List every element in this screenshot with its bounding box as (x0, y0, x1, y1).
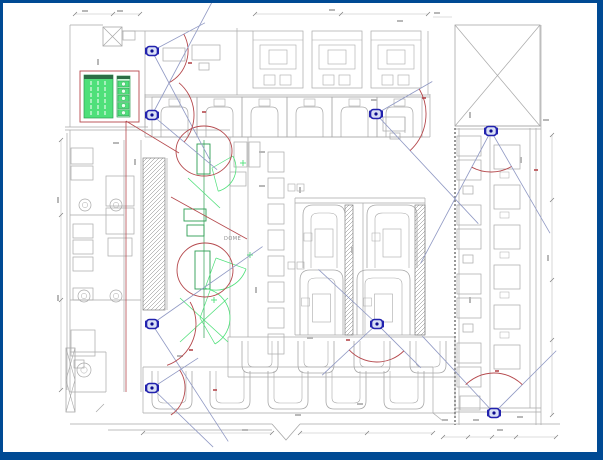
camera-fov (152, 247, 263, 442)
legend-table (80, 71, 139, 122)
frame-border-right (597, 0, 603, 460)
camera-icon[interactable] (369, 110, 383, 119)
cad-floor-plan-page: DOME (0, 0, 603, 460)
camera-icon[interactable] (484, 127, 498, 136)
camera-icon[interactable] (145, 320, 159, 329)
camera-fov (152, 23, 211, 162)
camera-fov (376, 82, 478, 224)
camera-icon[interactable] (370, 320, 384, 329)
booths-layer (152, 31, 520, 409)
camera-fov (421, 131, 550, 263)
frame-border-bottom (0, 452, 603, 460)
green-annotation-layer (180, 140, 253, 344)
camera-icon[interactable] (145, 47, 159, 56)
frame-border-top (0, 0, 603, 3)
floor-plan-svg (0, 0, 603, 460)
dome-camera-label: DOME (224, 236, 241, 242)
camera-icon[interactable] (145, 111, 159, 120)
frame-border-left (0, 0, 3, 460)
camera-icon[interactable] (145, 384, 159, 393)
camera-icon[interactable] (487, 409, 501, 418)
